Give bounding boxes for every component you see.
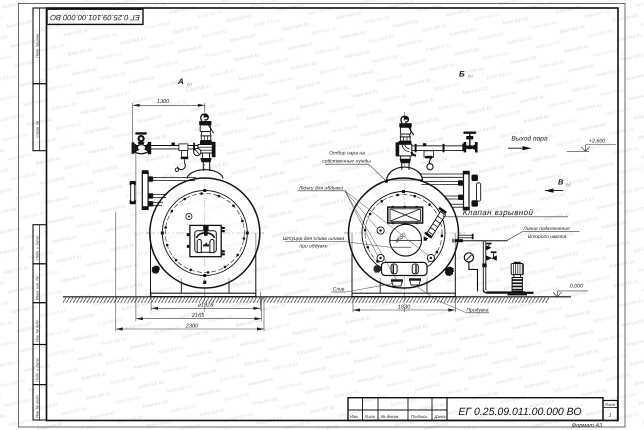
svg-text:ЕГ 0.25.09.011.00.000 ВО: ЕГ 0.25.09.011.00.000 ВО (458, 406, 581, 418)
svg-text:(у): (у) (187, 82, 192, 87)
svg-text:Изм: Изм (350, 414, 358, 419)
svg-text:1830: 1830 (398, 304, 411, 310)
svg-text:Инв. № подл.: Инв. № подл. (35, 394, 39, 418)
svg-text:2165: 2165 (191, 313, 205, 319)
svg-text:Взам. инв. №: Взам. инв. № (35, 277, 39, 300)
svg-text:⌀1928: ⌀1928 (198, 303, 215, 309)
svg-text:Клапан взрывной: Клапан взрывной (463, 208, 534, 217)
svg-text:0,000: 0,000 (570, 283, 584, 289)
svg-text:№ докум.: № докум. (381, 414, 399, 419)
svg-text:при обдувке: при обдувке (299, 243, 328, 249)
svg-text:Б: Б (459, 70, 465, 79)
svg-text:Подпись: Подпись (411, 414, 428, 419)
svg-text:Дата: Дата (434, 414, 447, 419)
svg-text:Перв. примен.: Перв. примен. (35, 33, 39, 58)
svg-text:Подп. и дата: Подп. и дата (35, 236, 39, 260)
svg-text:А: А (177, 77, 184, 86)
svg-text:Лючки для обдувки: Лючки для обдувки (298, 185, 344, 191)
svg-text:(у): (у) (468, 73, 473, 78)
svg-text:Подп. и дата: Подп. и дата (35, 358, 39, 382)
svg-text:В: В (558, 178, 564, 187)
svg-text:2300: 2300 (185, 323, 199, 329)
svg-text:Штуцер для слива шлама: Штуцер для слива шлама (283, 236, 345, 242)
svg-text:Второго насоса: Второго насоса (528, 234, 567, 240)
svg-text:Линия подключения: Линия подключения (522, 226, 570, 232)
svg-text:1300: 1300 (157, 99, 170, 105)
svg-text:Формат А3: Формат А3 (572, 423, 603, 429)
svg-text:+2,600: +2,600 (589, 139, 606, 145)
svg-text:Инв. № дубл.: Инв. № дубл. (35, 319, 39, 342)
svg-text:Выход пара: Выход пара (511, 136, 548, 143)
svg-text:Справ. №: Справ. № (35, 121, 39, 138)
svg-text:собственные нужды: собственные нужды (322, 159, 371, 165)
svg-text:ЕГ 0.25.09.101.00.000 ВО: ЕГ 0.25.09.101.00.000 ВО (50, 13, 140, 22)
svg-text:1: 1 (609, 413, 612, 419)
svg-text:Лист: Лист (364, 414, 376, 419)
svg-text:Лист: Лист (604, 402, 616, 407)
svg-text:Отбор пара на: Отбор пара на (329, 151, 365, 157)
svg-text:(у): (у) (566, 182, 571, 187)
